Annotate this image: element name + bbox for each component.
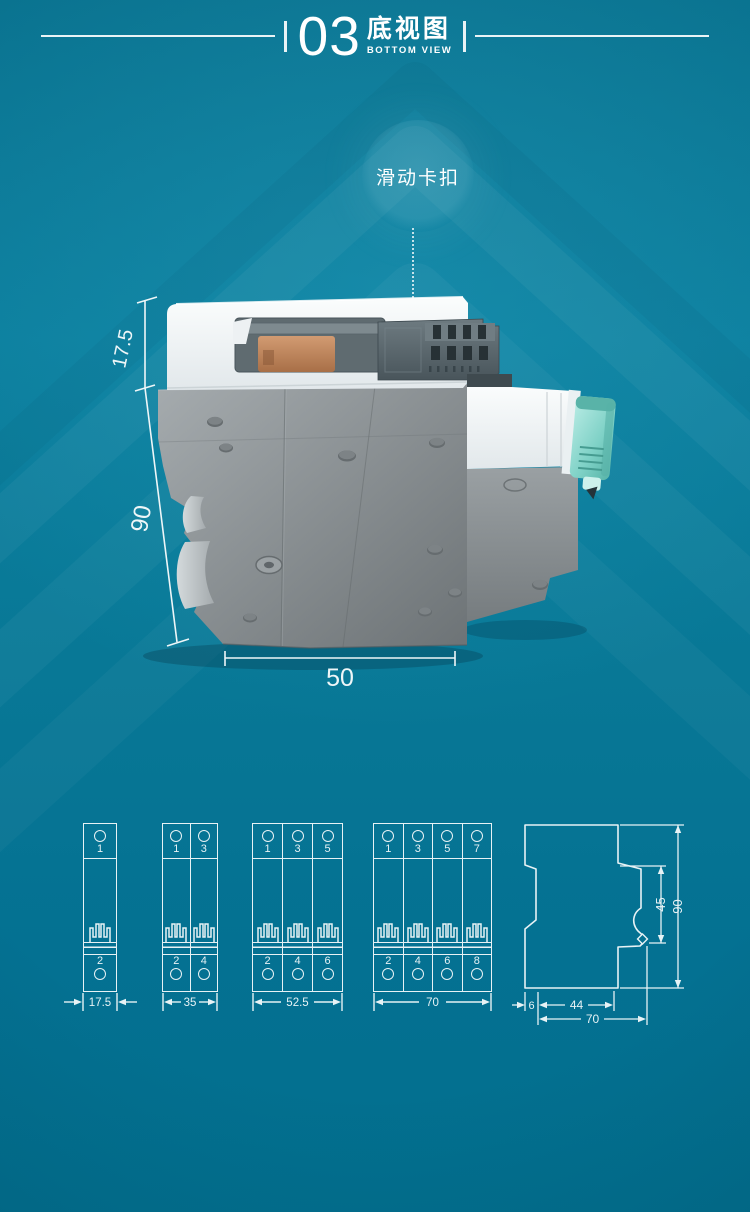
terminal-number: 2 — [253, 956, 282, 967]
page: 03 底视图 BOTTOM VIEW 滑动卡扣 — [0, 0, 750, 1212]
unit-divider — [374, 858, 491, 859]
section-number: 03 — [298, 12, 361, 60]
terminal-comb — [407, 922, 429, 942]
header-tick-left — [284, 21, 287, 52]
dim-width-2pole: 35 — [162, 993, 218, 1011]
header-tick-right — [463, 21, 466, 52]
terminal-circle — [262, 968, 274, 980]
terminal-circle — [170, 968, 182, 980]
terminal-circle — [441, 830, 453, 842]
unit-rail-lines — [84, 942, 116, 955]
section-header: 03 底视图 BOTTOM VIEW — [0, 12, 750, 60]
callout-label: 滑动卡扣 — [352, 163, 484, 190]
terminal-circle — [198, 968, 210, 980]
outline-side-profile: 45 90 6 44 70 — [510, 815, 700, 1030]
terminal-circle — [412, 968, 424, 980]
unit-divider — [84, 858, 116, 859]
terminal-comb — [193, 922, 215, 942]
din-clip-latch — [638, 934, 648, 944]
terminal-number: 2 — [163, 956, 190, 967]
pole: 3 4 — [282, 824, 312, 991]
terminal-circle — [94, 830, 106, 842]
sliding-clip-connector — [378, 319, 512, 387]
dim-label-70: 70 — [586, 1012, 600, 1026]
terminal-number: 1 — [374, 844, 403, 855]
svg-text:35: 35 — [184, 997, 197, 1009]
terminal-circle — [170, 830, 182, 842]
outline-2pole: 1 2 3 4 — [162, 823, 218, 992]
terminal-comb — [257, 922, 279, 942]
dim-label-44: 44 — [570, 998, 584, 1012]
header-rule-right — [475, 35, 709, 37]
terminal-number: 1 — [163, 844, 190, 855]
terminal-number: 6 — [433, 956, 462, 967]
terminal-comb — [165, 922, 187, 942]
product-photo: 17.5 90 50 — [95, 270, 655, 700]
dim-label-50: 50 — [326, 664, 354, 692]
pole: 5 6 — [432, 824, 462, 991]
terminal-circle — [471, 968, 483, 980]
svg-text:70: 70 — [426, 997, 439, 1009]
outline-4pole: 1 2 3 4 5 6 7 — [373, 823, 492, 992]
terminal-number: 5 — [313, 844, 342, 855]
unit-rail-lines — [163, 942, 217, 955]
dim-label-6: 6 — [528, 1000, 534, 1012]
terminal-circle — [382, 968, 394, 980]
unit-rail-lines — [253, 942, 342, 955]
dim-width-3pole: 52.5 — [252, 993, 343, 1011]
terminal-circle — [198, 830, 210, 842]
terminal-comb — [89, 922, 111, 942]
outline-3pole: 1 2 3 4 5 6 — [252, 823, 343, 992]
dim-label-17-5: 17.5 — [108, 327, 138, 370]
dim-label-90: 90 — [126, 503, 157, 534]
terminal-comb — [317, 922, 339, 942]
pole: 1 2 — [253, 824, 282, 991]
pole: 3 4 — [190, 824, 218, 991]
dim-label-90: 90 — [670, 899, 685, 913]
unit-divider — [163, 858, 217, 859]
terminal-number: 4 — [404, 956, 433, 967]
section-title-en: BOTTOM VIEW — [367, 46, 453, 56]
terminal-circle — [412, 830, 424, 842]
dim-width-4pole: 70 — [373, 993, 492, 1011]
terminal-circle — [292, 968, 304, 980]
pole: 1 2 — [84, 824, 116, 991]
connector-under-block — [467, 374, 512, 387]
pole: 1 2 — [163, 824, 190, 991]
terminal-circle — [322, 968, 334, 980]
unit-rail-lines — [374, 942, 491, 955]
breaker-body — [158, 384, 467, 648]
breaker-right-section — [467, 384, 578, 622]
pole: 7 8 — [462, 824, 492, 991]
svg-text:52.5: 52.5 — [286, 997, 308, 1009]
terminal-circle — [262, 830, 274, 842]
pole: 1 2 — [374, 824, 403, 991]
section-titles: 底视图 BOTTOM VIEW — [367, 17, 453, 56]
terminal-number: 3 — [191, 844, 218, 855]
terminal-number: 1 — [253, 844, 282, 855]
terminal-number: 2 — [374, 956, 403, 967]
terminal-circle — [322, 830, 334, 842]
terminal-comb — [436, 922, 458, 942]
terminal-number: 3 — [283, 844, 312, 855]
unit-divider — [253, 858, 342, 859]
terminal-circle — [441, 968, 453, 980]
terminal-comb — [287, 922, 309, 942]
pole: 3 4 — [403, 824, 433, 991]
terminal-comb — [377, 922, 399, 942]
dim-width-1pole: 17.5 — [60, 993, 155, 1011]
svg-text:17.5: 17.5 — [89, 997, 111, 1009]
terminal-circle — [471, 830, 483, 842]
pole: 5 6 — [312, 824, 342, 991]
terminal-number: 6 — [313, 956, 342, 967]
terminal-number: 5 — [433, 844, 462, 855]
terminal-number: 4 — [283, 956, 312, 967]
terminal-number: 1 — [84, 844, 116, 855]
terminal-number: 4 — [191, 956, 218, 967]
terminal-circle — [292, 830, 304, 842]
terminal-number: 2 — [84, 956, 116, 967]
terminal-circle — [94, 968, 106, 980]
outline-1pole: 1 2 — [83, 823, 117, 992]
header-rule-left — [41, 35, 275, 37]
terminal-comb — [466, 922, 488, 942]
terminal-circle — [382, 830, 394, 842]
dim-label-45: 45 — [653, 897, 668, 911]
section-title-cn: 底视图 — [367, 17, 453, 42]
terminal-number: 7 — [463, 844, 492, 855]
terminal-number: 3 — [404, 844, 433, 855]
terminal-number: 8 — [463, 956, 492, 967]
